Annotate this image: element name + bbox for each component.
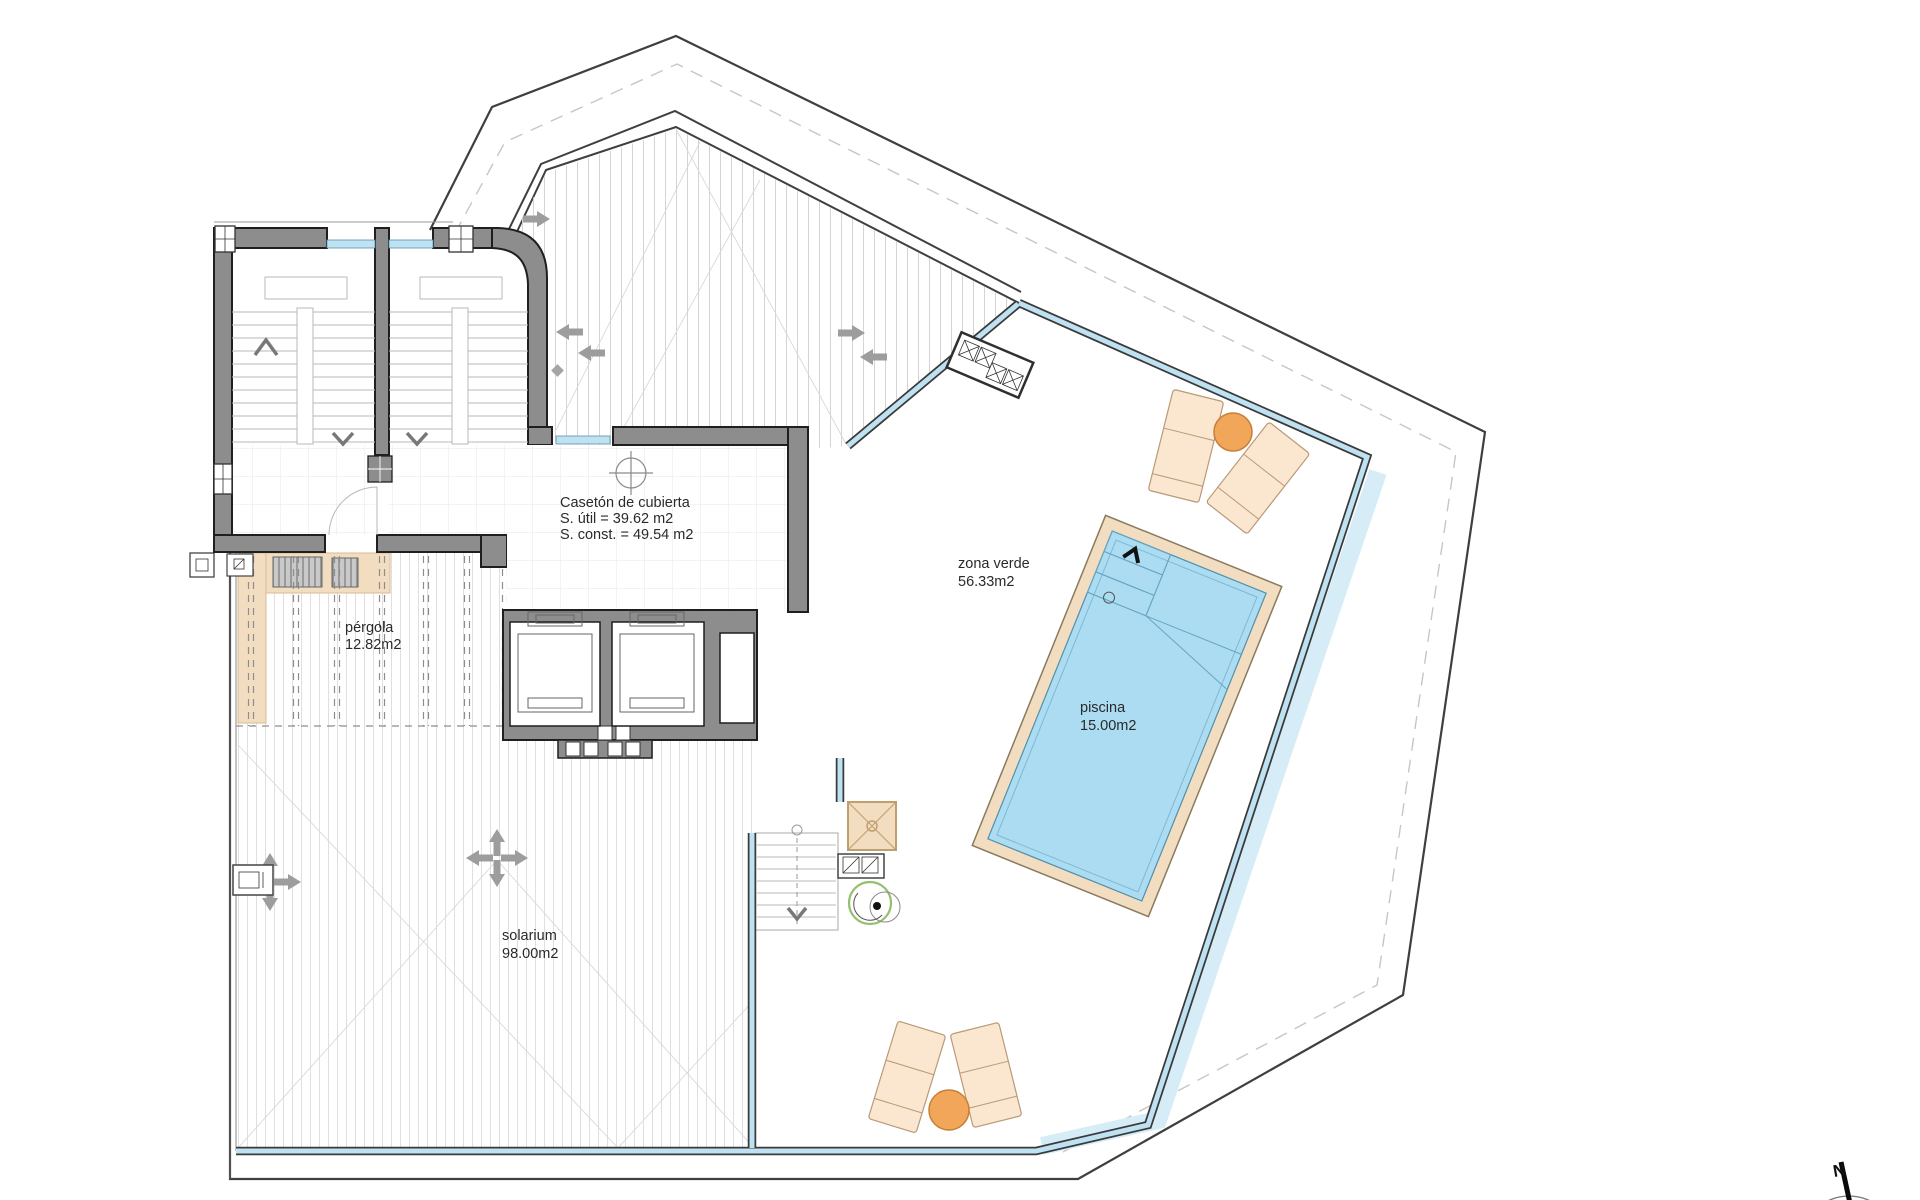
north-compass: N <box>1801 1160 1897 1200</box>
elevator-shaft-left <box>510 612 600 726</box>
plant <box>849 882 900 924</box>
stair-block <box>214 226 552 567</box>
pergola-utility-box <box>227 554 253 576</box>
caseton-util: S. útil = 39.62 m2 <box>560 511 673 527</box>
pergola-area-value: 12.82m2 <box>345 637 401 653</box>
rooftop-unit <box>332 558 358 587</box>
plan-canvas: Casetón de cubierta S. útil = 39.62 m2 S… <box>0 0 1920 1200</box>
sun-lounger <box>1148 389 1224 502</box>
window <box>556 436 610 444</box>
ac-platform <box>947 332 1034 397</box>
rooftop-unit <box>273 557 322 587</box>
exterior-stair <box>755 825 838 930</box>
zona-verde-area-value: 56.33m2 <box>958 574 1014 590</box>
pergola-label: pérgola <box>345 620 394 636</box>
side-table <box>929 1090 969 1130</box>
skylight <box>848 802 896 850</box>
caseton-const: S. const. = 49.54 m2 <box>560 527 693 543</box>
drain-box <box>233 865 273 895</box>
solarium-area-value: 98.00m2 <box>502 946 558 962</box>
window <box>327 240 375 248</box>
elevator-block <box>503 610 757 758</box>
outdoor-sink <box>838 854 884 878</box>
elevator-shaft-right <box>612 612 704 726</box>
solarium-label: solarium <box>502 928 557 944</box>
zona-verde-label: zona verde <box>958 556 1030 572</box>
niche <box>720 633 754 723</box>
roof-hatch <box>500 110 1060 455</box>
roof-floor-plan: Casetón de cubierta S. útil = 39.62 m2 S… <box>0 0 1920 1200</box>
side-table <box>1214 413 1252 451</box>
caseton-label: Casetón de cubierta <box>560 495 691 511</box>
wall-utility-box <box>190 553 214 577</box>
piscina-area-value: 15.00m2 <box>1080 718 1136 734</box>
piscina-label: piscina <box>1080 700 1126 716</box>
roof-area <box>500 110 1060 455</box>
compass-n-label: N <box>1832 1160 1847 1181</box>
window <box>389 240 433 248</box>
